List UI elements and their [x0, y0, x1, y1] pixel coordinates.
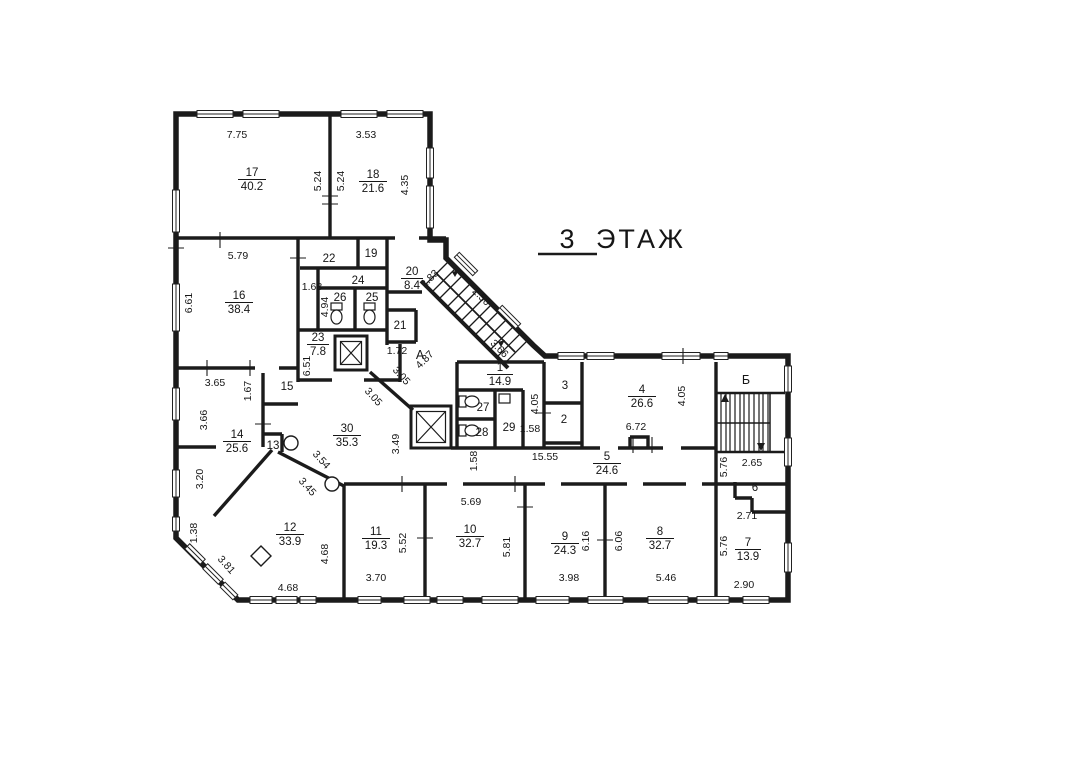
- svg-text:14.9: 14.9: [489, 376, 511, 388]
- room-7-label: 7 13.9: [735, 537, 761, 563]
- room-4-label: 4 26.6: [628, 384, 656, 410]
- dim-label: 5.24: [335, 171, 347, 192]
- room-2-label: 2: [561, 414, 567, 426]
- dim-label: 5.76: [718, 457, 730, 478]
- dim-label: 6.06: [613, 531, 625, 552]
- staircase-b: [716, 393, 785, 452]
- dim-label: 5.52: [397, 533, 409, 554]
- room-11-label: 11 19.3: [362, 526, 390, 552]
- dim-label: 2.90: [734, 579, 755, 591]
- room-1-label: 1 14.9: [487, 362, 513, 388]
- room-26-label: 26: [334, 292, 347, 304]
- dim-label: 6.61: [183, 293, 195, 314]
- room-21-label: 21: [394, 320, 407, 332]
- dim-label: 7.75: [227, 129, 248, 141]
- svg-text:26.6: 26.6: [631, 398, 653, 410]
- svg-text:32.7: 32.7: [649, 540, 671, 552]
- dim-label: 3.66: [488, 337, 511, 360]
- floor-title: 3 ЭТАЖ: [538, 224, 686, 254]
- floor-title-number: 3: [559, 224, 574, 254]
- svg-text:4: 4: [639, 384, 646, 396]
- svg-text:14: 14: [231, 429, 244, 441]
- room-9-label: 9 24.3: [551, 531, 579, 557]
- room-27-label: 27: [477, 402, 490, 414]
- elevator-icon: [411, 406, 451, 448]
- svg-text:18: 18: [367, 169, 380, 181]
- room-25-label: 25: [366, 292, 379, 304]
- svg-text:35.3: 35.3: [336, 437, 358, 449]
- elevator-icon: [335, 336, 367, 370]
- dim-label: 4.68: [278, 582, 299, 594]
- dim-label: 1.58: [468, 451, 480, 472]
- dim-label: 3.05: [390, 364, 413, 387]
- dim-label: 4.35: [399, 175, 411, 196]
- window: [185, 544, 206, 565]
- room-30-label: 30 35.3: [333, 423, 361, 449]
- dim-label: 3.66: [198, 410, 210, 431]
- dim-label: 6.16: [580, 531, 592, 552]
- svg-text:16: 16: [233, 290, 246, 302]
- floorplan-page: 3 ЭТАЖ 17 40.2 18 21.6 16 38.4 22 19: [0, 0, 1072, 768]
- svg-text:25.6: 25.6: [226, 443, 248, 455]
- room-20-label: 20 8.4: [401, 266, 423, 292]
- svg-text:8: 8: [657, 526, 663, 538]
- room-16-label: 16 38.4: [225, 290, 253, 316]
- room-3-label: 3: [562, 380, 568, 392]
- dim-label: 4.68: [319, 544, 331, 565]
- svg-text:24.6: 24.6: [596, 465, 618, 477]
- dim-label: 3.05: [362, 385, 385, 408]
- svg-text:11: 11: [370, 526, 382, 538]
- svg-text:10: 10: [464, 524, 477, 536]
- dim-label: 1.68: [302, 281, 323, 293]
- dim-label: 4.05: [529, 394, 541, 415]
- svg-text:17: 17: [246, 167, 259, 179]
- svg-text:5: 5: [604, 451, 610, 463]
- dim-label: 5.24: [312, 171, 324, 192]
- room-8-label: 8 32.7: [646, 526, 674, 552]
- svg-text:24.3: 24.3: [554, 545, 576, 557]
- svg-text:7: 7: [745, 537, 751, 549]
- svg-text:21.6: 21.6: [362, 183, 384, 195]
- room-22-label: 22: [323, 253, 336, 265]
- dim-label: 3.45: [296, 475, 319, 498]
- dim-label: 1.38: [188, 523, 200, 544]
- dim-label: 3.53: [356, 129, 377, 141]
- svg-text:12: 12: [284, 522, 297, 534]
- dim-label: 3.70: [366, 572, 387, 584]
- dim-label: 1.67: [242, 381, 254, 402]
- dim-label: 5.69: [461, 496, 482, 508]
- floorplan-drawing: 3 ЭТАЖ 17 40.2 18 21.6 16 38.4 22 19: [0, 0, 1072, 768]
- svg-text:38.4: 38.4: [228, 304, 251, 316]
- floor-title-word: ЭТАЖ: [596, 224, 686, 254]
- dim-label: 5.76: [718, 536, 730, 557]
- dim-label: 6.72: [626, 421, 647, 433]
- dim-label: 5.46: [656, 572, 677, 584]
- svg-text:19.3: 19.3: [365, 540, 387, 552]
- dim-label: 2.65: [742, 457, 763, 469]
- svg-text:23: 23: [312, 332, 325, 344]
- dim-label: 3.54: [310, 448, 333, 471]
- dim-label: 5.81: [501, 537, 513, 558]
- room-13-label: 13: [267, 440, 280, 452]
- room-19-label: 19: [365, 248, 378, 260]
- window: [220, 582, 238, 600]
- stairwell-b-label: Б: [742, 373, 750, 387]
- dim-label: 3.65: [205, 377, 226, 389]
- room-18-label: 18 21.6: [359, 169, 387, 195]
- room-10-label: 10 32.7: [456, 524, 484, 550]
- window: [427, 148, 434, 228]
- dim-label: 3.98: [559, 572, 580, 584]
- dim-label: 6.51: [301, 356, 313, 377]
- room-24-label: 24: [352, 275, 365, 287]
- svg-text:20: 20: [406, 266, 419, 278]
- stair-b-arrow: [721, 394, 729, 402]
- dim-label: 3.49: [390, 434, 402, 455]
- room-15-label: 15: [281, 381, 294, 393]
- room-12-label: 12 33.9: [276, 522, 304, 548]
- dim-label: 3.20: [194, 469, 206, 490]
- room-6-label: 6: [752, 482, 758, 494]
- dim-label: 1.72: [387, 345, 408, 357]
- svg-text:32.7: 32.7: [459, 538, 481, 550]
- room-29-label: 29: [503, 422, 516, 434]
- room-23-label: 23 7.8: [307, 332, 329, 358]
- svg-text:30: 30: [341, 423, 354, 435]
- svg-text:33.9: 33.9: [279, 536, 301, 548]
- room-14-label: 14 25.6: [223, 429, 251, 455]
- dim-label: 3.81: [215, 553, 238, 576]
- dim-label: 4.05: [676, 386, 688, 407]
- svg-text:1: 1: [497, 362, 503, 374]
- dim-label: 4.94: [319, 297, 331, 318]
- stair-b-arrow: [757, 443, 765, 451]
- windows: [173, 111, 792, 604]
- svg-text:40.2: 40.2: [241, 181, 263, 193]
- room-28-label: 28: [476, 427, 489, 439]
- sink-icon: [499, 394, 510, 403]
- room-5-label: 5 24.6: [593, 451, 621, 477]
- svg-text:9: 9: [562, 531, 568, 543]
- room-17-label: 17 40.2: [238, 167, 266, 193]
- dim-label: 1.58: [520, 423, 541, 435]
- dim-label: 2.71: [737, 510, 758, 522]
- svg-text:13.9: 13.9: [737, 551, 759, 563]
- dim-label: 5.79: [228, 250, 249, 262]
- dim-label: 15.55: [532, 451, 558, 463]
